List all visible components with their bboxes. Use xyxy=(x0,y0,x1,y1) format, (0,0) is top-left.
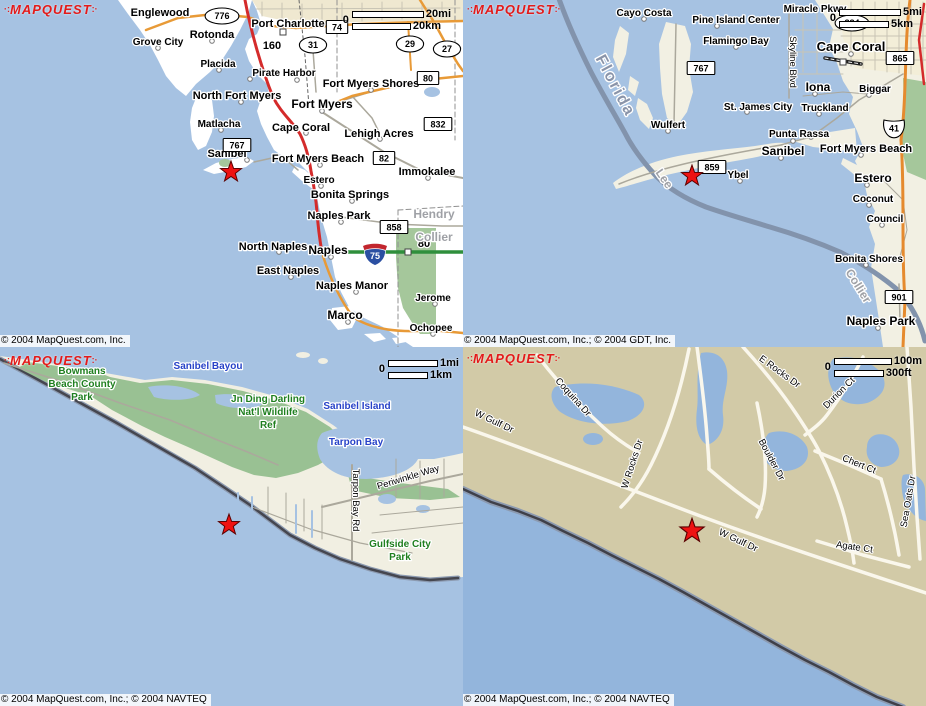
route-shield: 767 xyxy=(223,139,251,152)
scale-bar-miles xyxy=(388,360,438,367)
place-label: Jerome xyxy=(415,293,451,304)
logo-sparkle-icon: :· xyxy=(92,355,98,365)
scale-label-primary: 20mi xyxy=(426,8,451,20)
scale-bar-meters xyxy=(834,358,892,365)
mapquest-logo: ·:MAPQUEST:· xyxy=(467,351,561,366)
route-shield: 80 xyxy=(417,72,438,85)
scale-bar-km xyxy=(352,23,411,30)
logo-sparkle-icon: :· xyxy=(555,4,561,14)
map-canvas-area: Cayo CostaPine Island CenterMiracle Pkwy… xyxy=(463,0,926,347)
place-label: Council xyxy=(867,214,904,225)
place-label: Grove City xyxy=(133,37,184,48)
route-number: 75 xyxy=(370,251,380,261)
logo-text: MAPQUEST xyxy=(473,351,555,366)
place-label: Bonita Springs xyxy=(311,189,389,201)
scale-bars: 5mi 5km xyxy=(839,6,922,30)
map-tile-street[interactable]: W Gulf DrCoquina DrW Rocks DrE Rocks DrD… xyxy=(463,347,926,706)
route-number: 80 xyxy=(423,74,433,84)
route-number: 767 xyxy=(229,141,244,151)
route-number: 767 xyxy=(693,64,708,74)
place-label: Placida xyxy=(200,59,235,70)
place-label: Marco xyxy=(327,308,362,322)
place-label: Bonita Shores xyxy=(835,254,903,265)
park-label: Park xyxy=(389,552,411,563)
scale-label-secondary: 5km xyxy=(891,18,913,30)
place-label: Fort Myers Shores xyxy=(323,78,420,90)
place-label: Naples xyxy=(308,243,348,257)
scale-zero: 0 xyxy=(379,363,385,375)
copyright-text: © 2004 MapQuest.com, Inc.; © 2004 NAVTEQ xyxy=(463,694,674,706)
mapquest-logo: ·:MAPQUEST:· xyxy=(4,353,98,368)
map-geometry xyxy=(378,494,396,504)
route-shield: 865 xyxy=(886,52,914,65)
place-label: St. James City xyxy=(724,102,793,113)
scale-bar-km xyxy=(388,372,428,379)
route-shield: 29 xyxy=(396,36,423,52)
scale-bar: 0 100m 300ft xyxy=(825,355,922,379)
route-number: 41 xyxy=(889,124,899,134)
place-label: Sanibel xyxy=(762,144,805,158)
scale-label-primary: 100m xyxy=(894,355,922,367)
place-label: Naples Park xyxy=(847,314,916,328)
park-label: Park xyxy=(71,392,93,403)
route-shield: 776 xyxy=(205,8,239,24)
place-label: Coconut xyxy=(853,194,894,205)
route-shield: 27 xyxy=(433,41,460,57)
route-number: 776 xyxy=(214,11,229,21)
route-shield: 31 xyxy=(299,37,326,53)
route-number: 901 xyxy=(891,293,906,303)
scale-bars: 1mi 1km xyxy=(388,357,459,381)
map-geometry xyxy=(296,352,310,358)
county-label: Collier xyxy=(415,230,453,244)
route-shield: 858 xyxy=(380,221,408,234)
street-label: Skyline Blvd xyxy=(787,36,798,88)
place-label: Flamingo Bay xyxy=(703,36,769,47)
scale-bar: 0 1mi 1km xyxy=(379,357,459,381)
place-label: Pine Island Center xyxy=(692,15,779,26)
scale-label-primary: 1mi xyxy=(440,357,459,369)
map-geometry xyxy=(424,87,440,97)
place-label: Ybel xyxy=(727,170,748,181)
place-label: North Naples xyxy=(239,241,307,253)
scale-bar-miles xyxy=(839,9,901,16)
place-label: Rotonda xyxy=(190,29,235,41)
county-label: Hendry xyxy=(413,207,455,221)
route-shield: 767 xyxy=(687,62,715,75)
route-number: 31 xyxy=(308,40,318,50)
place-label: Truckland xyxy=(801,103,848,114)
scale-bars: 20mi 20km xyxy=(352,8,451,32)
place-label: Fort Myers Beach xyxy=(820,143,913,155)
route-number: 29 xyxy=(405,39,415,49)
route-shield: 901 xyxy=(885,291,913,304)
place-label: Englewood xyxy=(131,7,190,19)
water-label: Sanibel Bayou xyxy=(174,361,243,372)
route-number: 832 xyxy=(430,120,445,130)
scale-bar-km xyxy=(839,21,889,28)
scale-label-primary: 5mi xyxy=(903,6,922,18)
route-number: 74 xyxy=(332,23,342,33)
route-number: 858 xyxy=(386,223,401,233)
scale-bar-miles xyxy=(352,11,424,18)
place-label: Fort Myers xyxy=(291,97,353,111)
copyright-text: © 2004 MapQuest.com, Inc.; © 2004 GDT, I… xyxy=(463,335,675,347)
scale-bar: 0 5mi 5km xyxy=(830,6,922,30)
place-label: Naples Manor xyxy=(316,280,389,292)
map-tile-area[interactable]: Cayo CostaPine Island CenterMiracle Pkwy… xyxy=(463,0,926,347)
place-label: Punta Rassa xyxy=(769,129,829,140)
mapquest-multimap: EnglewoodPort CharlotteGrove CityRotonda… xyxy=(0,0,926,706)
park-label: Ref xyxy=(260,420,277,431)
scale-label-secondary: 1km xyxy=(430,369,452,381)
water-label: Sanibel Island xyxy=(323,401,390,412)
route-number: 865 xyxy=(892,54,907,64)
map-tile-island[interactable]: BowmansBeach CountyParkJn Ding DarlingNa… xyxy=(0,347,463,706)
copyright-text: © 2004 MapQuest.com, Inc.; © 2004 NAVTEQ xyxy=(0,694,211,706)
place-label: North Fort Myers xyxy=(193,90,282,102)
place-label: Immokalee xyxy=(399,166,456,178)
place-label: Biggar xyxy=(859,84,891,95)
park-label: Jn Ding Darling xyxy=(231,394,305,405)
place-label: Ochopee xyxy=(410,323,453,334)
place-label: Cape Coral xyxy=(272,122,330,134)
logo-sparkle-icon: :· xyxy=(92,4,98,14)
map-canvas-regional: EnglewoodPort CharlotteGrove CityRotonda… xyxy=(0,0,463,347)
place-label: 160 xyxy=(263,40,281,52)
route-number: 82 xyxy=(379,154,389,164)
scale-label-secondary: 20km xyxy=(413,20,441,32)
park-label: Nat'l Wildlife xyxy=(238,407,298,418)
place-label: Fort Myers Beach xyxy=(272,153,365,165)
scale-zero: 0 xyxy=(830,12,836,24)
logo-sparkle-icon: :· xyxy=(555,353,561,363)
map-tile-regional[interactable]: EnglewoodPort CharlotteGrove CityRotonda… xyxy=(0,0,463,347)
logo-text: MAPQUEST xyxy=(473,2,555,17)
junction-marker xyxy=(405,249,411,255)
place-label: Wulfert xyxy=(651,120,686,131)
place-label: Estero xyxy=(854,171,891,185)
place-label: Iona xyxy=(806,80,831,94)
place-label: Lehigh Acres xyxy=(344,128,413,140)
place-label: East Naples xyxy=(257,265,319,277)
scale-zero: 0 xyxy=(343,14,349,26)
scale-label-secondary: 300ft xyxy=(886,367,912,379)
location-star-marker xyxy=(219,514,240,534)
place-label: Port Charlotte xyxy=(251,18,324,30)
route-number: 859 xyxy=(704,163,719,173)
water-label: Tarpon Bay xyxy=(329,437,384,448)
map-geometry xyxy=(364,333,386,342)
map-canvas-street: W Gulf DrCoquina DrW Rocks DrE Rocks DrD… xyxy=(463,347,926,706)
place-label: Naples Park xyxy=(308,210,372,222)
place-label: Matlacha xyxy=(198,119,241,130)
street-label: Tarpon Bay Rd xyxy=(350,469,361,532)
mapquest-logo: ·:MAPQUEST:· xyxy=(467,2,561,17)
copyright-text: © 2004 MapQuest.com, Inc. xyxy=(0,335,130,347)
park-label: Beach County xyxy=(48,379,116,390)
map-geometry xyxy=(318,358,328,364)
logo-text: MAPQUEST xyxy=(10,353,92,368)
map-geometry xyxy=(628,76,639,96)
scale-bar-feet xyxy=(834,370,884,377)
park-label: Gulfside City xyxy=(369,539,431,550)
place-label: Cayo Costa xyxy=(616,8,671,19)
route-number: 27 xyxy=(442,44,452,54)
junction-marker xyxy=(840,59,846,65)
scale-bars: 100m 300ft xyxy=(834,355,922,379)
map-geometry xyxy=(613,26,629,72)
logo-text: MAPQUEST xyxy=(10,2,92,17)
map-canvas-island: BowmansBeach CountyParkJn Ding DarlingNa… xyxy=(0,347,463,706)
route-shield: 82 xyxy=(373,152,394,165)
place-label: Pirate Harbor xyxy=(252,68,315,79)
county-label: Collier xyxy=(843,266,875,305)
scale-zero: 0 xyxy=(825,361,831,373)
place-label: Estero xyxy=(303,175,334,186)
route-shield: 832 xyxy=(424,118,452,131)
place-label: Cape Coral xyxy=(817,39,886,54)
scale-bar: 0 20mi 20km xyxy=(343,8,451,32)
map-geometry xyxy=(583,433,603,445)
route-shield: 859 xyxy=(698,161,726,174)
mapquest-logo: ·:MAPQUEST:· xyxy=(4,2,98,17)
